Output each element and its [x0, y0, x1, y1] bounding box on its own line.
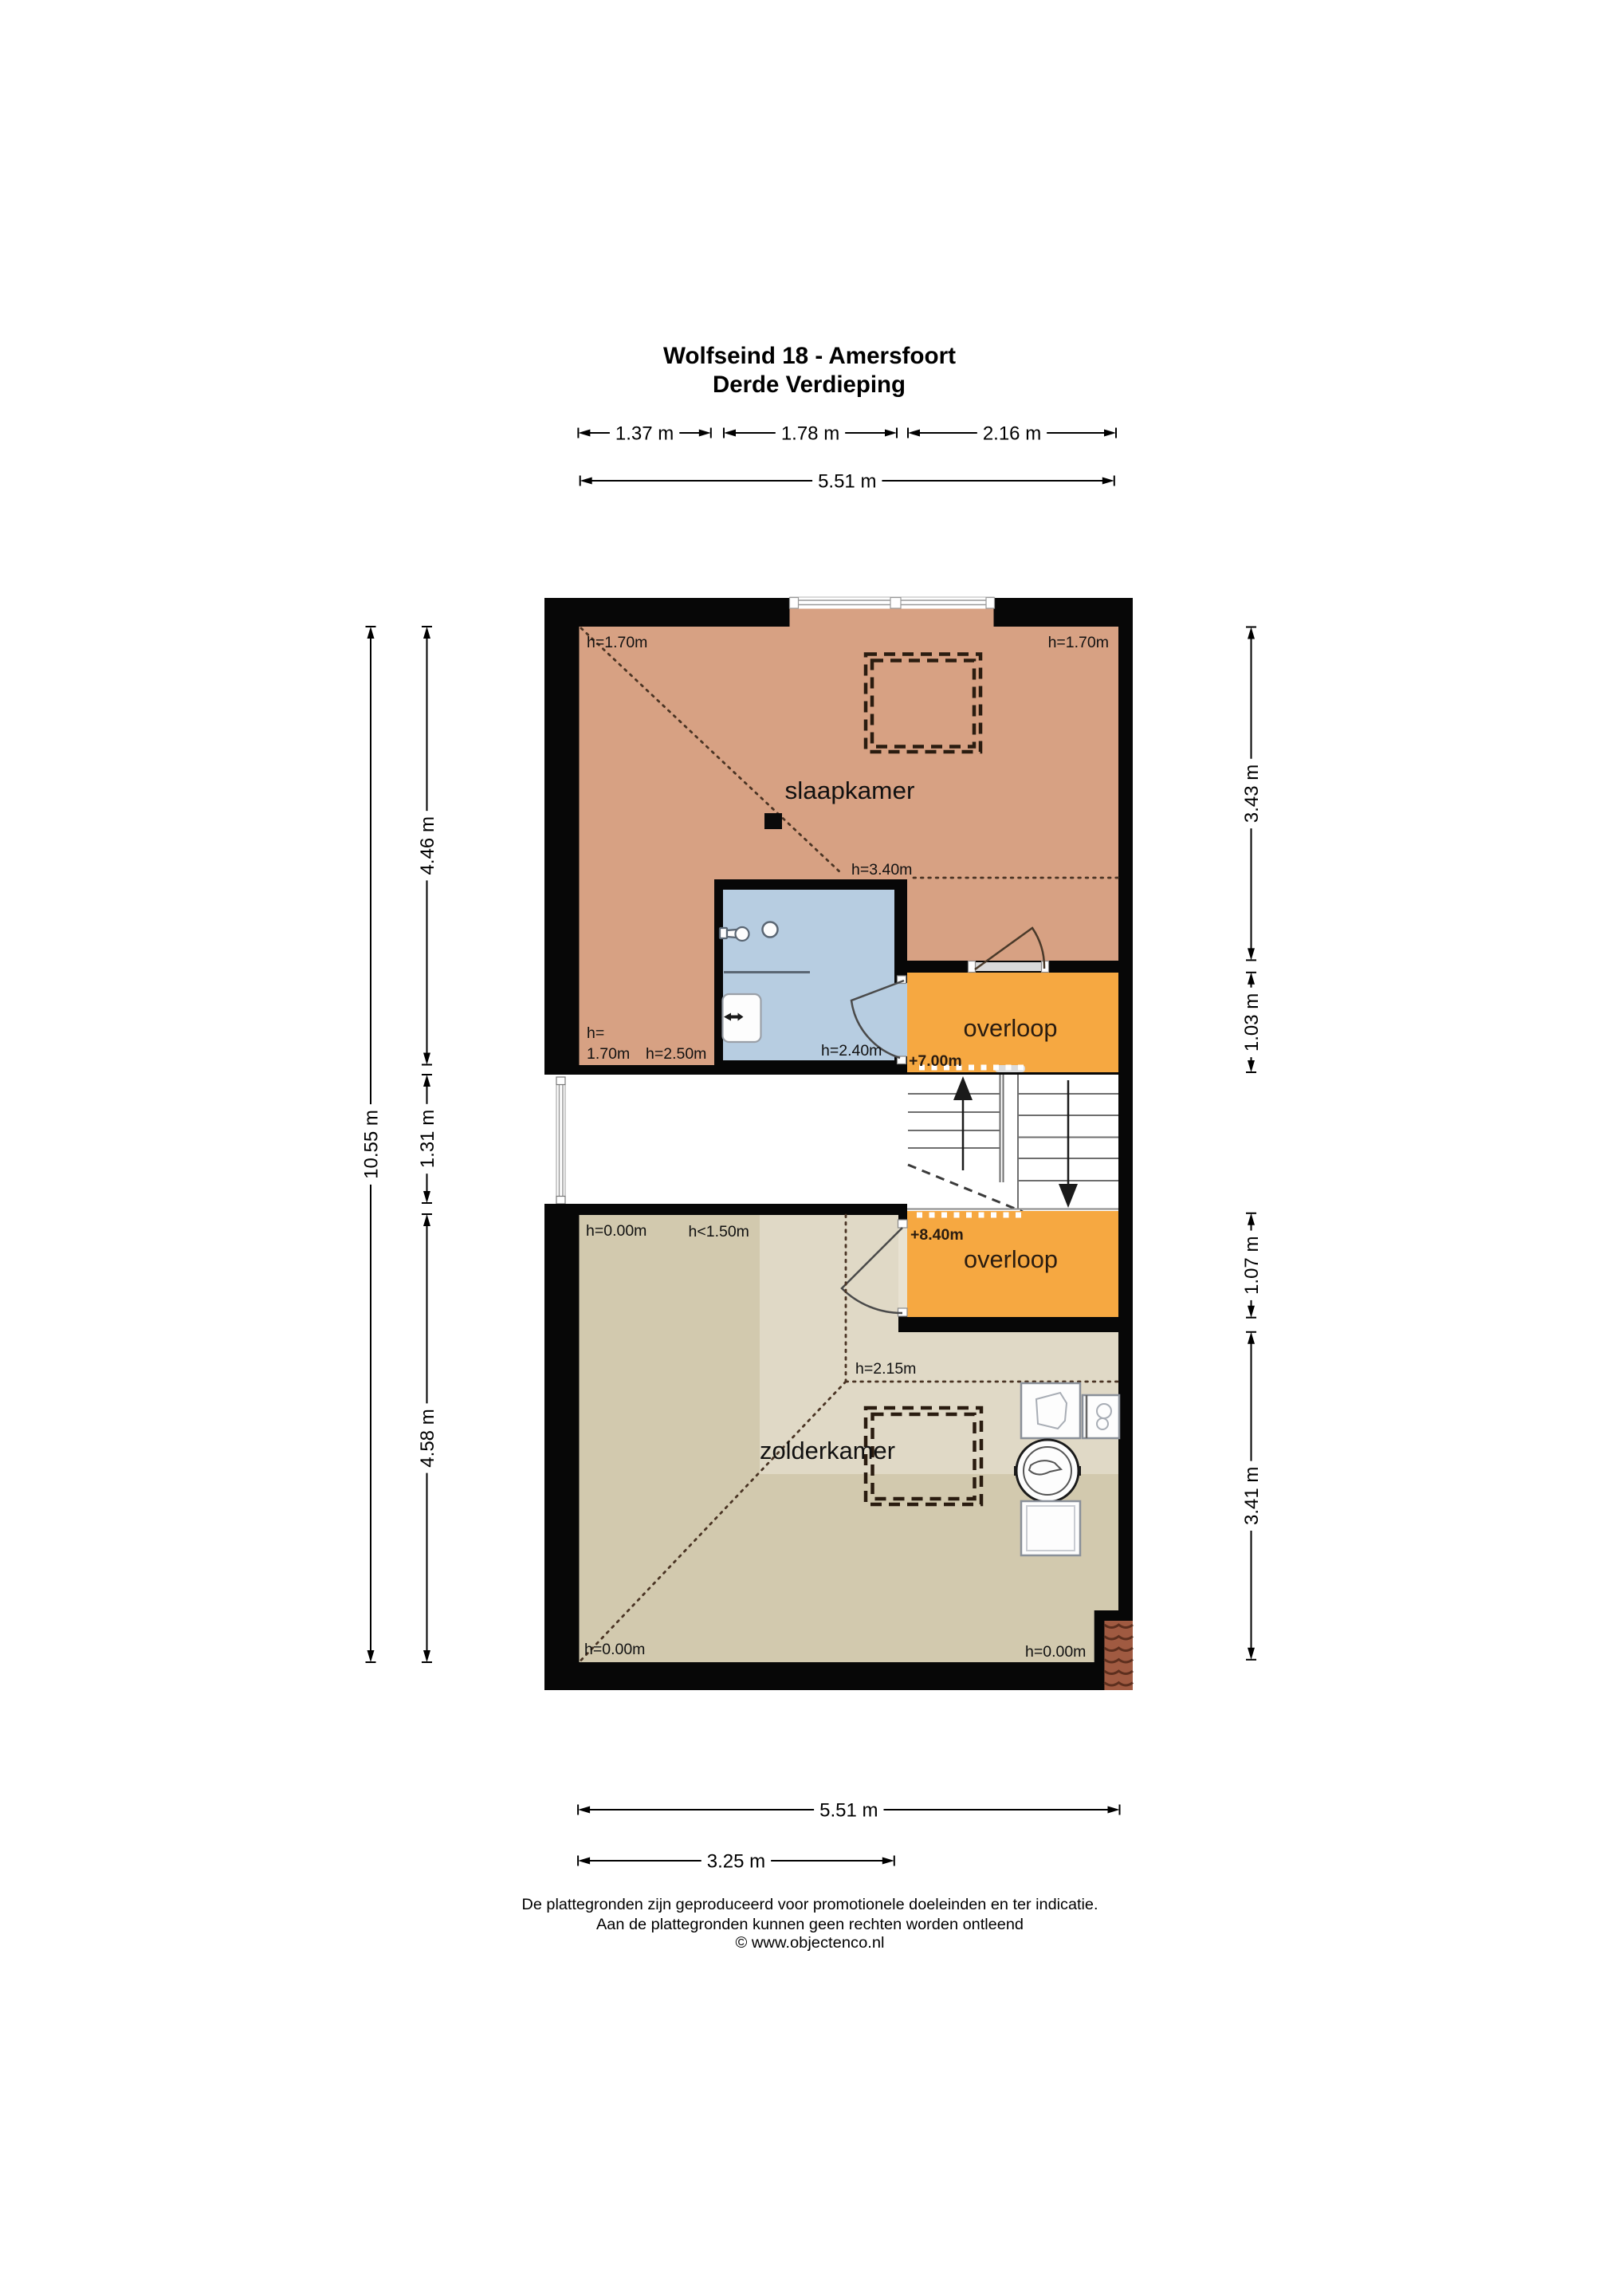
- svg-text:Derde Verdieping: Derde Verdieping: [713, 372, 906, 398]
- svg-text:zolderkamer: zolderkamer: [760, 1437, 895, 1464]
- svg-text:3.25 m: 3.25 m: [707, 1851, 765, 1873]
- svg-text:2.16 m: 2.16 m: [983, 423, 1041, 445]
- svg-text:h=0.00m: h=0.00m: [584, 1641, 645, 1658]
- svg-text:1.78 m: 1.78 m: [781, 423, 839, 445]
- svg-text:4.58 m: 4.58 m: [417, 1409, 438, 1467]
- svg-text:1.07 m: 1.07 m: [1241, 1236, 1263, 1295]
- svg-text:1.70m: 1.70m: [587, 1045, 630, 1063]
- svg-text:h=0.00m: h=0.00m: [586, 1222, 646, 1240]
- svg-text:h=2.15m: h=2.15m: [855, 1360, 916, 1378]
- svg-text:5.51 m: 5.51 m: [819, 1800, 878, 1822]
- svg-text:5.51 m: 5.51 m: [818, 471, 876, 493]
- svg-text:4.46 m: 4.46 m: [417, 816, 438, 875]
- svg-text:h=3.40m: h=3.40m: [851, 861, 912, 879]
- svg-text:1.37 m: 1.37 m: [615, 423, 674, 445]
- svg-text:De plattegronden zijn geproduc: De plattegronden zijn geproduceerd voor …: [522, 1897, 1098, 1913]
- svg-text:h=0.00m: h=0.00m: [1025, 1643, 1086, 1661]
- svg-text:1.03 m: 1.03 m: [1241, 993, 1263, 1052]
- svg-text:© www.objectenco.nl: © www.objectenco.nl: [736, 1935, 885, 1952]
- svg-text:h=1.70m: h=1.70m: [1048, 634, 1109, 651]
- svg-text:3.41 m: 3.41 m: [1241, 1467, 1263, 1525]
- svg-text:slaapkamer: slaapkamer: [785, 776, 915, 804]
- svg-text:h<1.50m: h<1.50m: [689, 1223, 749, 1240]
- svg-text:3.43 m: 3.43 m: [1241, 765, 1263, 823]
- svg-text:h=2.40m: h=2.40m: [821, 1042, 882, 1060]
- svg-text:Wolfseind 18 - Amersfoort: Wolfseind 18 - Amersfoort: [663, 343, 956, 369]
- svg-text:h=1.70m: h=1.70m: [587, 634, 647, 651]
- svg-text:+8.40m: +8.40m: [910, 1226, 964, 1244]
- svg-text:Aan de plattegronden kunnen ge: Aan de plattegronden kunnen geen rechten…: [596, 1917, 1024, 1933]
- svg-text:overloop: overloop: [964, 1245, 1058, 1273]
- svg-text:1.31 m: 1.31 m: [417, 1110, 438, 1168]
- svg-text:10.55 m: 10.55 m: [361, 1110, 383, 1179]
- svg-text:h=2.50m: h=2.50m: [646, 1045, 706, 1063]
- svg-text:+7.00m: +7.00m: [909, 1052, 962, 1070]
- svg-text:h=: h=: [587, 1024, 604, 1042]
- svg-text:overloop: overloop: [964, 1014, 1058, 1042]
